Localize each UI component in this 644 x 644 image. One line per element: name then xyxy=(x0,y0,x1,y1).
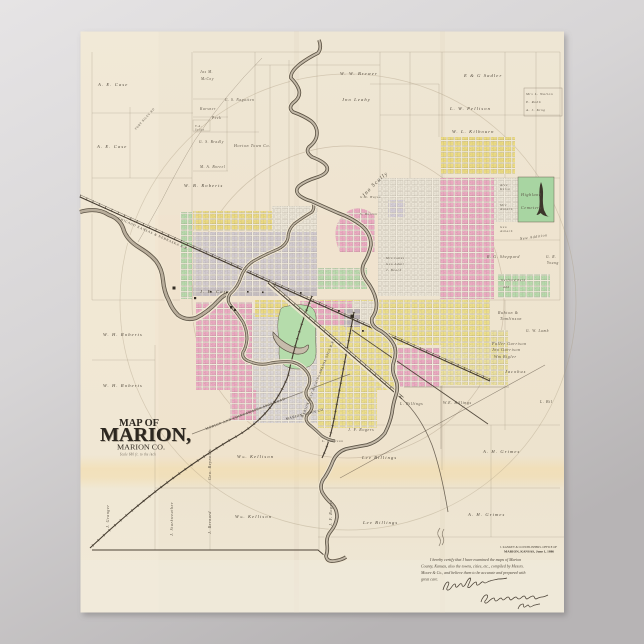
svg-text:Tomlinson: Tomlinson xyxy=(500,316,522,321)
svg-text:I hereby certify that I have e: I hereby certify that I have examined th… xyxy=(429,557,521,562)
svg-text:Wm. Kellison: Wm. Kellison xyxy=(235,514,272,519)
svg-text:Young: Young xyxy=(547,261,559,265)
svg-text:L. W. Pellison: L. W. Pellison xyxy=(449,106,491,111)
svg-text:MARION,: MARION, xyxy=(100,424,191,446)
svg-text:Garfield Park: Garfield Park xyxy=(501,278,526,282)
svg-text:Geo Adair: Geo Adair xyxy=(386,262,405,266)
svg-text:Wm Bigler: Wm Bigler xyxy=(494,354,517,359)
svg-text:W. H. Roberts: W. H. Roberts xyxy=(103,332,143,337)
svg-text:E. Robb: E. Robb xyxy=(525,100,541,104)
svg-text:Peck: Peck xyxy=(211,116,221,120)
svg-text:L. Kellison: L. Kellison xyxy=(321,439,343,443)
svg-text:A. J. King: A. J. King xyxy=(525,108,546,112)
svg-text:L. Billings: L. Billings xyxy=(399,401,423,406)
svg-text:C. S. Nagatten: C. S. Nagatten xyxy=(225,98,254,102)
svg-text:Highland: Highland xyxy=(520,192,542,197)
svg-text:Lev Billings: Lev Billings xyxy=(362,520,398,525)
svg-text:W. B. Roberts: W. B. Roberts xyxy=(184,183,223,188)
svg-text:MARION CO.: MARION CO. xyxy=(117,445,165,452)
svg-text:Cemetery: Cemetery xyxy=(521,205,542,210)
svg-text:W. L. Kilbourn: W. L. Kilbourn xyxy=(452,129,495,134)
svg-text:G. W. Lamb: G. W. Lamb xyxy=(526,329,549,333)
svg-text:MARION, KANSAS, June 1, 1886: MARION, KANSAS, June 1, 1886 xyxy=(504,550,554,554)
svg-text:Mrs Gates: Mrs Gates xyxy=(385,256,405,260)
svg-text:Geo. Reynolds: Geo. Reynolds xyxy=(207,449,212,480)
svg-text:A. E. Case: A. E. Case xyxy=(97,82,128,87)
svg-text:Kelso: Kelso xyxy=(499,187,510,191)
svg-text:J. KANKEY & CO PUBLISHERS. OFF: J. KANKEY & CO PUBLISHERS. OFFICE OF xyxy=(500,545,557,549)
svg-text:Jas M.: Jas M. xyxy=(200,70,213,74)
svg-text:S. Burton: S. Burton xyxy=(360,212,377,216)
svg-text:G. S. Bradly: G. S. Bradly xyxy=(199,140,224,144)
svg-text:J. Beach: J. Beach xyxy=(386,268,402,272)
svg-text:Asbach: Asbach xyxy=(499,207,513,211)
svg-text:Asbach: Asbach xyxy=(499,229,513,233)
svg-text:W.E. Billings: W.E. Billings xyxy=(443,400,472,405)
svg-text:Jno Garrison: Jno Garrison xyxy=(492,347,521,352)
svg-text:G. R.: G. R. xyxy=(546,255,557,259)
svg-text:Lev Billings: Lev Billings xyxy=(361,455,397,460)
svg-text:J. E. Case: J. E. Case xyxy=(200,289,230,294)
svg-text:W. W. Brewer: W. W. Brewer xyxy=(340,71,378,76)
svg-text:Add: Add xyxy=(502,285,510,289)
svg-text:M. A. Boreel: M. A. Boreel xyxy=(199,165,225,169)
svg-text:A. H. Grimes: A. H. Grimes xyxy=(467,512,505,517)
svg-text:J. F. Rogers: J. F. Rogers xyxy=(348,427,374,432)
svg-text:J. Starkweather: J. Starkweather xyxy=(169,502,174,536)
svg-text:A. E. Case: A. E. Case xyxy=(96,144,127,149)
svg-text:J. Bernard: J. Bernard xyxy=(207,511,212,534)
svg-text:J. F. Rogers: J. F. Rogers xyxy=(328,500,333,526)
svg-text:great care.: great care. xyxy=(421,577,438,582)
svg-text:Ruhton &: Ruhton & xyxy=(497,310,519,315)
svg-text:Fuller Garrison: Fuller Garrison xyxy=(491,341,527,346)
svg-text:Jacobus: Jacobus xyxy=(505,369,526,374)
svg-text:Jno Leahy: Jno Leahy xyxy=(342,97,371,102)
svg-text:W. H. Roberts: W. H. Roberts xyxy=(103,383,143,388)
svg-text:Mrs L. Walton: Mrs L. Walton xyxy=(525,92,553,96)
svg-text:A. H. Grimes: A. H. Grimes xyxy=(482,449,520,454)
svg-text:E & G Sadler: E & G Sadler xyxy=(463,73,502,78)
svg-text:Horton Town Co.: Horton Town Co. xyxy=(233,143,271,148)
svg-text:Karsner: Karsner xyxy=(199,107,216,111)
svg-text:R. G. Sheppard: R. G. Sheppard xyxy=(486,254,520,259)
svg-text:L. Bil: L. Bil xyxy=(539,399,553,404)
svg-text:J. Granger: J. Granger xyxy=(105,504,110,528)
svg-text:McCoy: McCoy xyxy=(200,77,214,81)
svg-text:Selby: Selby xyxy=(195,128,205,132)
svg-text:Wm. Kellison: Wm. Kellison xyxy=(237,454,274,459)
svg-text:Scale 600 ft. to the inch: Scale 600 ft. to the inch xyxy=(120,453,156,457)
